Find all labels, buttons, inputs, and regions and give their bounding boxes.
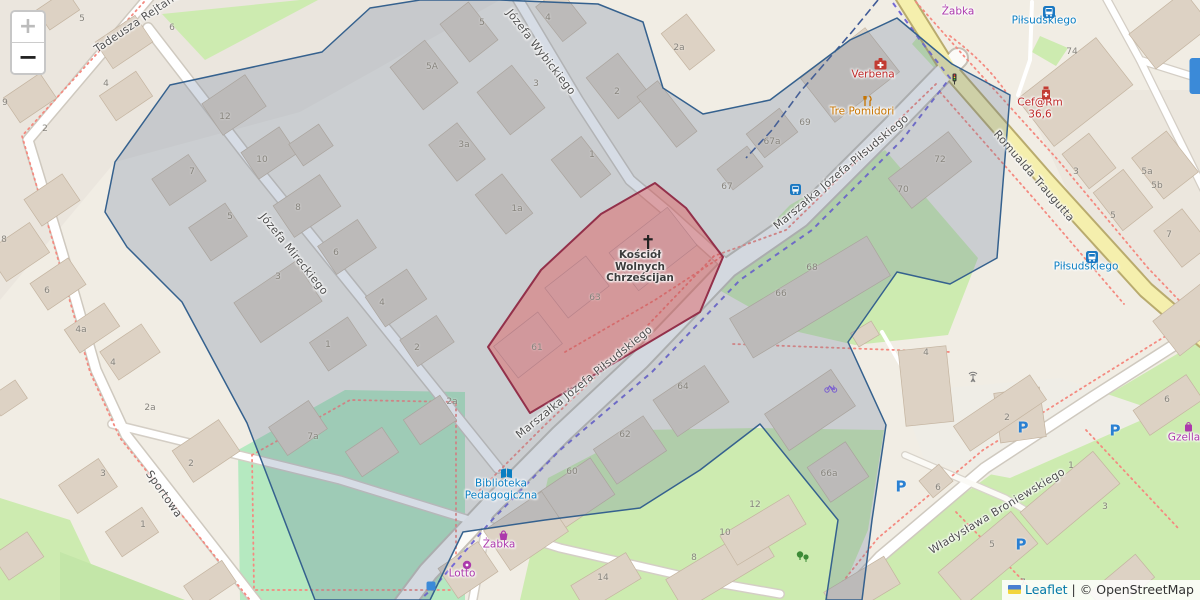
- building: [105, 507, 158, 556]
- attribution-bar: Leaflet | © OpenStreetMap: [1002, 580, 1200, 600]
- building: [59, 458, 118, 513]
- leaflet-link[interactable]: Leaflet: [1025, 582, 1068, 597]
- ukraine-flag-icon: [1008, 585, 1021, 594]
- building: [0, 380, 27, 416]
- building: [898, 346, 954, 427]
- map-canvas[interactable]: Tadeusza RejtanaJózefa WybickiegoJózefa …: [0, 0, 1200, 600]
- zoom-control: + −: [10, 10, 46, 75]
- zoom-in-button[interactable]: +: [12, 12, 44, 43]
- building: [172, 420, 240, 483]
- attribution-separator: |: [1072, 582, 1076, 597]
- zoom-out-button[interactable]: −: [12, 43, 44, 73]
- openstreetmap-link[interactable]: © OpenStreetMap: [1080, 582, 1194, 597]
- building: [661, 14, 715, 70]
- map-svg: [0, 0, 1200, 600]
